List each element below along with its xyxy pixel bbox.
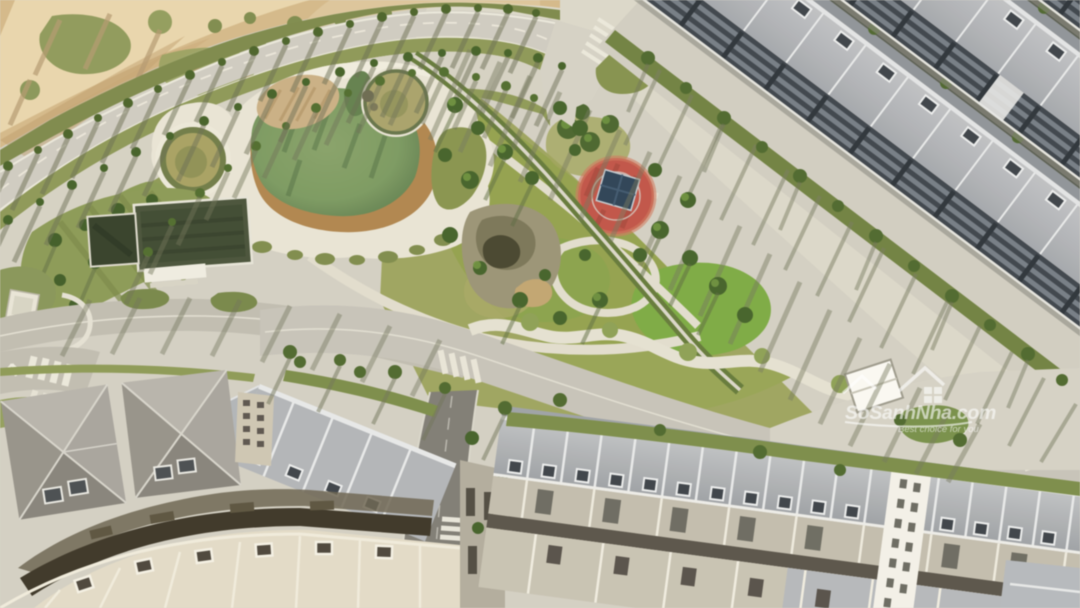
svg-text:SoSanhNha.com: SoSanhNha.com	[845, 402, 996, 424]
